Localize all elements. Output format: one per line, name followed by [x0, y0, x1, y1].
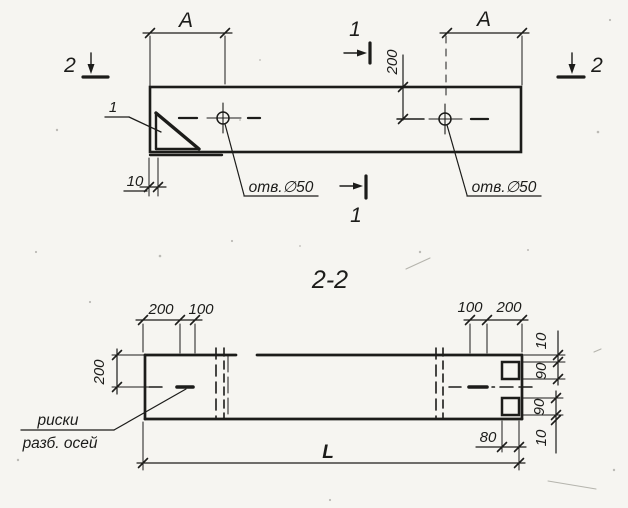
hole-left	[179, 103, 260, 133]
plan-beam-outline	[150, 87, 521, 152]
plan-view: 1 отв.∅50	[63, 8, 603, 227]
axis-note-line2: разб. осей	[22, 435, 98, 452]
detail-ref-text: 1	[109, 99, 117, 116]
cut-marker-2-right-text: 2	[590, 54, 603, 77]
dim-tl-200: 200	[147, 301, 174, 318]
dim-height-left-text: 200	[91, 359, 108, 386]
dim-a-left	[143, 29, 232, 87]
cut-marker-2-left-text: 2	[63, 54, 76, 77]
cut-marker-1-bottom	[340, 176, 366, 198]
dim-200-plan	[397, 55, 424, 124]
hole-label-left-text: отв.∅50	[249, 179, 314, 196]
dim-chain-top-left	[136, 316, 202, 354]
dim-height-left	[112, 349, 148, 394]
cut-marker-1-top-text: 1	[349, 18, 361, 41]
dim-chain-top-right	[464, 316, 528, 354]
dim-a-right-text: A	[475, 8, 491, 31]
cut-marker-1-top	[344, 43, 370, 63]
dim-a-left-text: A	[177, 9, 193, 32]
dim-tr-100: 100	[457, 299, 483, 316]
end-notch-upper	[502, 362, 519, 379]
detail-ref-leader	[105, 117, 161, 132]
dim-tr-200: 200	[495, 299, 522, 316]
end-notch-lower	[502, 398, 519, 415]
scan-artifacts	[17, 19, 615, 501]
hidden-hole-lines-left	[216, 348, 228, 419]
dim-right-10-top: 10	[533, 332, 550, 349]
dim-length-text: L	[322, 442, 334, 463]
cut-marker-2-left	[83, 53, 108, 77]
axis-note-line1: риски	[37, 412, 79, 429]
hidden-hole-lines-right	[436, 348, 443, 419]
dim-tl-100: 100	[188, 301, 214, 318]
dim-200-plan-text: 200	[384, 49, 401, 76]
cut-marker-1-bottom-text: 1	[350, 204, 362, 227]
technical-drawing: 1 отв.∅50	[0, 0, 628, 508]
dim-10-plan-text: 10	[127, 173, 144, 190]
section-title: 2-2	[311, 266, 348, 294]
dim-notch-depth-text: 80	[480, 429, 497, 446]
cut-marker-2-right	[558, 53, 584, 77]
dim-a-right	[440, 29, 529, 102]
hole-right	[429, 104, 488, 134]
section-view: 2-2	[21, 266, 565, 470]
drawing-sheet: { "meta": { "paper_color": "#f6f5f1", "i…	[0, 0, 628, 508]
hole-label-right-text: отв.∅50	[472, 179, 537, 196]
dim-right-10-bottom: 10	[533, 429, 550, 446]
section-beam-outline	[145, 355, 522, 419]
dim-right-90-upper: 90	[533, 362, 550, 379]
dim-right-90-lower: 90	[531, 398, 548, 415]
